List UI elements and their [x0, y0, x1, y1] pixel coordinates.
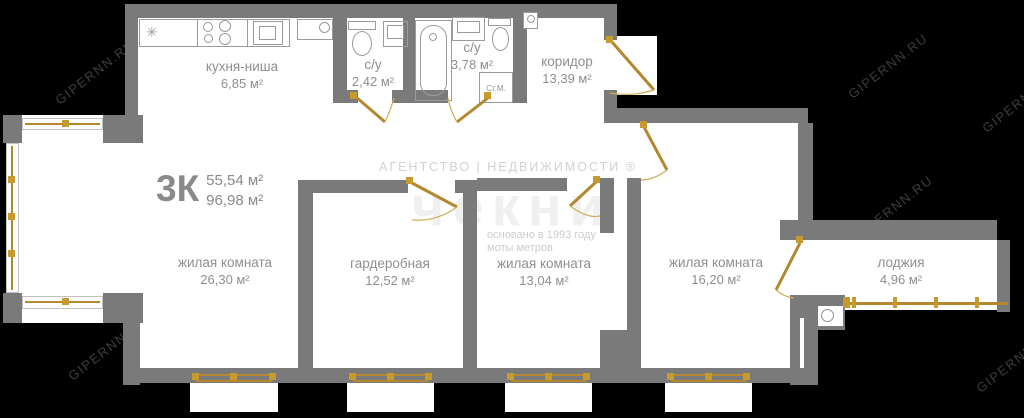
- door-jamb: [640, 121, 647, 128]
- bath2-door-leaf: [457, 98, 488, 122]
- floor-plan-canvas: GIPERNN.RU GIPERNN.RU GIPERNN.RU GIPERNN…: [0, 0, 1024, 418]
- wardrobe-door-arc: [412, 207, 457, 220]
- door-jamb: [796, 236, 803, 243]
- door-jambs: [350, 36, 803, 243]
- door-jamb: [484, 92, 491, 99]
- bath2-door-arc: [448, 98, 457, 122]
- living3-door-arc: [641, 170, 667, 180]
- door-jamb: [406, 177, 413, 184]
- door-jamb: [606, 36, 613, 43]
- wardrobe-door-leaf: [412, 183, 457, 207]
- door-jamb: [593, 176, 600, 183]
- entry-door-arc: [610, 90, 654, 94]
- bath1-door-arc: [385, 98, 394, 122]
- living2-door-arc: [570, 206, 600, 217]
- living3-door-leaf: [644, 127, 667, 170]
- door-leaves: [356, 42, 800, 290]
- bath1-door-leaf: [356, 97, 385, 122]
- doors-layer: [0, 0, 1024, 418]
- loggia-door-arc: [776, 290, 794, 298]
- loggia-door-leaf: [776, 243, 800, 290]
- living2-door-leaf: [570, 182, 596, 206]
- door-arcs: [385, 90, 794, 298]
- entry-door-leaf: [612, 42, 654, 90]
- door-jamb: [350, 92, 357, 99]
